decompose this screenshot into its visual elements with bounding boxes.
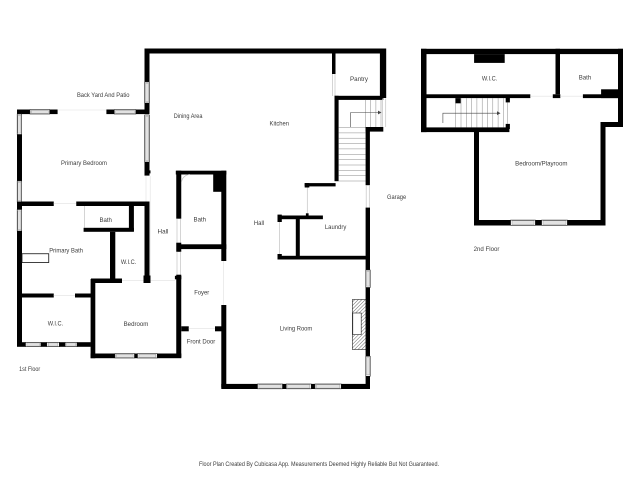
svg-text:Floor Plan Created By Cubicasa: Floor Plan Created By Cubicasa App. Meas… [199, 461, 439, 468]
svg-text:Pantry: Pantry [350, 76, 369, 83]
svg-text:Garage: Garage [387, 194, 406, 201]
svg-text:Bath: Bath [579, 75, 592, 82]
svg-text:Dining Area: Dining Area [174, 113, 203, 120]
svg-text:Kitchen: Kitchen [270, 120, 290, 127]
svg-text:Bath: Bath [99, 217, 112, 224]
svg-text:Bedroom: Bedroom [124, 321, 149, 328]
svg-text:W.I.C.: W.I.C. [121, 259, 137, 266]
svg-text:Bath: Bath [194, 216, 207, 223]
svg-text:Back Yard And Patio: Back Yard And Patio [77, 92, 130, 99]
svg-text:2nd Floor: 2nd Floor [474, 246, 501, 253]
svg-text:Primary Bedroom: Primary Bedroom [61, 160, 107, 167]
svg-text:Foyer: Foyer [194, 290, 210, 297]
svg-text:W.I.C.: W.I.C. [48, 320, 64, 327]
svg-text:Bedroom/Playroom: Bedroom/Playroom [515, 161, 567, 168]
svg-text:W.I.C.: W.I.C. [482, 75, 498, 82]
svg-text:1st Floor: 1st Floor [19, 366, 41, 373]
svg-text:Hall: Hall [254, 220, 264, 227]
svg-text:Living Room: Living Room [280, 325, 312, 332]
svg-text:Laundry: Laundry [325, 224, 347, 231]
svg-text:Hall: Hall [158, 229, 169, 236]
svg-text:Front Door: Front Door [187, 339, 216, 346]
svg-text:Primary Bath: Primary Bath [49, 247, 83, 254]
